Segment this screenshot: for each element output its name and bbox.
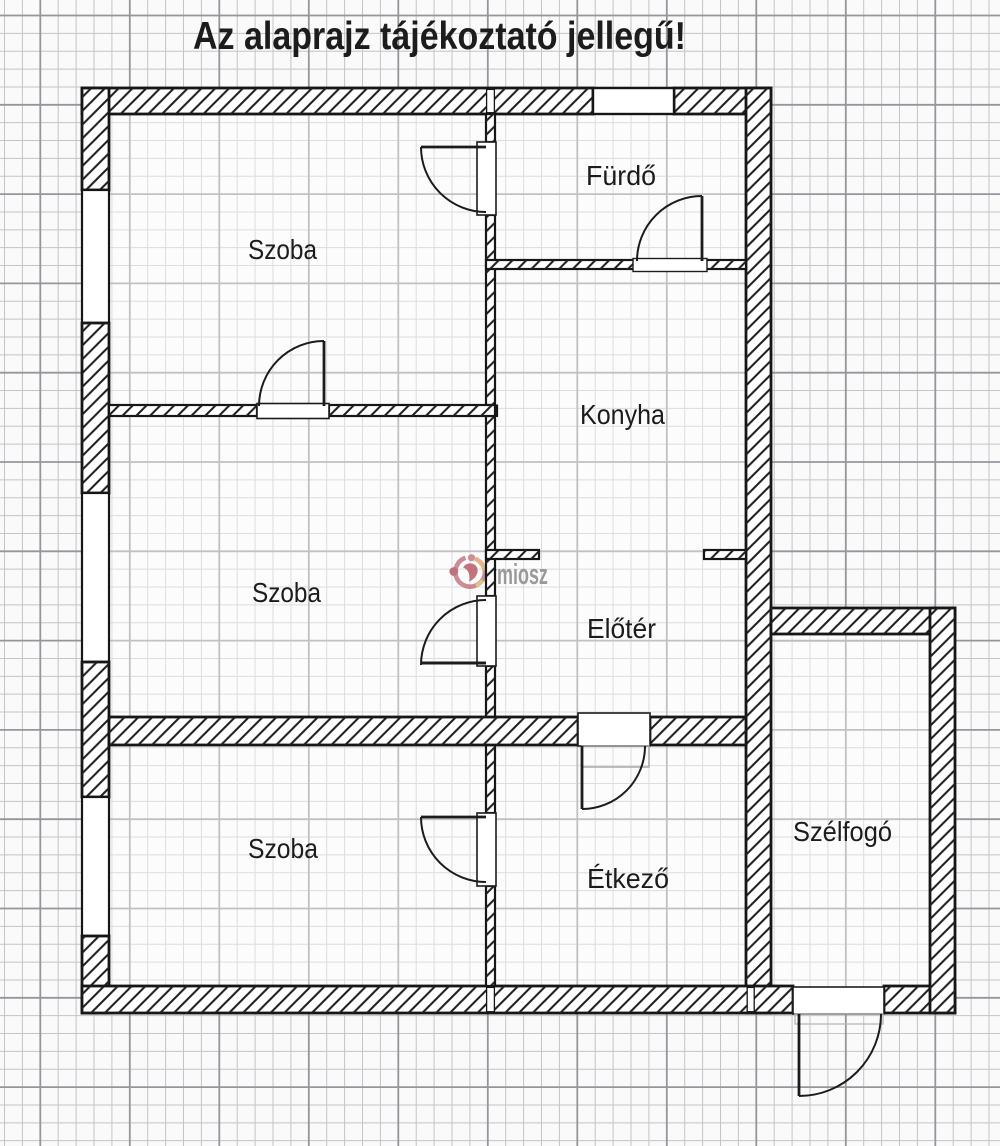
svg-text:Szoba: Szoba [252,577,321,608]
svg-text:Szoba: Szoba [248,234,317,265]
svg-text:Fürdő: Fürdő [586,160,656,191]
svg-text:miosz: miosz [497,559,548,591]
svg-text:Az alaprajz tájékoztató jelleg: Az alaprajz tájékoztató jellegű! [193,15,686,58]
svg-text:Konyha: Konyha [580,399,665,430]
svg-text:Étkező: Étkező [587,863,669,894]
svg-text:Szélfogó: Szélfogó [793,816,892,847]
svg-text:Szoba: Szoba [248,833,318,864]
svg-text:Előtér: Előtér [587,613,656,644]
